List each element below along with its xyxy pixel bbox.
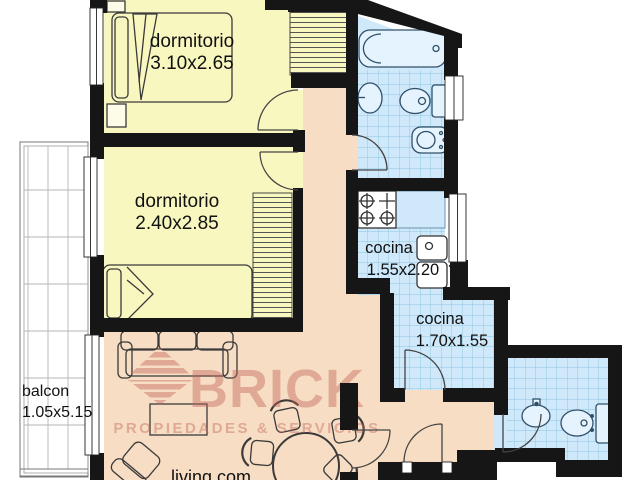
kitchen-window: [449, 194, 466, 262]
closet2-icon: [253, 193, 292, 318]
closet1-icon: [290, 12, 347, 75]
bathtub-icon: [359, 30, 446, 67]
bedroom2-dimensions: 2.40x2.85: [135, 213, 218, 234]
entrance-jamb-left: [402, 462, 412, 473]
hallway-floor: [303, 86, 347, 320]
floor-plan: BRICK PROPIEDADES & SERVICIOS: [0, 0, 640, 480]
hallway-floor-lower: [303, 293, 393, 320]
bedroom1-window: [90, 8, 103, 85]
toilet-icon: [412, 127, 449, 153]
balcony-door-window: [85, 335, 99, 455]
living-label: living com: [171, 467, 251, 480]
bedroom1-dimensions: 3.10x2.65: [150, 53, 233, 74]
kitchen-lower-dimensions: 1.70x1.55: [416, 332, 488, 350]
balcony-label: balcon: [22, 383, 69, 400]
bathroom-door-threshold: [346, 135, 358, 170]
kitchen-upper-label: cocina: [365, 239, 414, 257]
watermark-brand: BRICK: [189, 359, 365, 419]
floor-plan-canvas: BRICK PROPIEDADES & SERVICIOS: [0, 0, 640, 480]
kitchen-lower-label: cocina: [416, 310, 465, 328]
kitchen-upper-dimensions: 1.55x2.20: [367, 261, 439, 279]
balcony-outline: [20, 142, 88, 477]
bedroom1-label: dormitorio: [150, 31, 234, 52]
balcony-dimensions: 1.05x5.15: [22, 404, 92, 421]
balcony: [20, 142, 88, 477]
bathroom-window: [445, 76, 463, 120]
bedroom2-window: [84, 157, 97, 257]
bidet-icon: [400, 89, 430, 114]
entrance-jamb-right: [442, 462, 452, 473]
bedroom2-label: dormitorio: [135, 191, 219, 212]
powder-door-threshold: [494, 415, 507, 450]
powder-room-tiles: [507, 358, 608, 460]
